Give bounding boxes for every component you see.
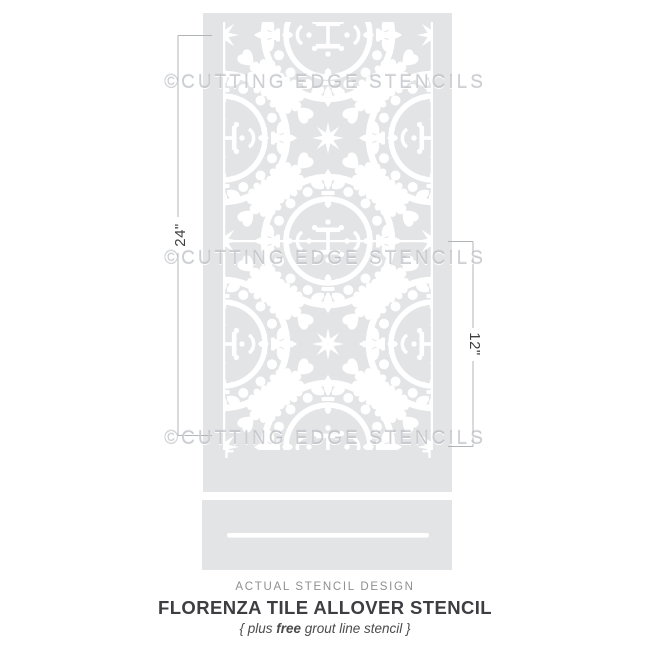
dimension-height-label: 24"	[172, 213, 190, 257]
caption-subtitle-bold: free	[276, 621, 301, 636]
caption-block: ACTUAL STENCIL DESIGN FLORENZA TILE ALLO…	[0, 580, 650, 637]
grout-slot	[227, 533, 429, 538]
stencil-graphic	[0, 0, 650, 650]
caption-subtitle: { plus free grout line stencil }	[0, 621, 650, 637]
caption-kicker: ACTUAL STENCIL DESIGN	[0, 580, 650, 594]
caption-subtitle-post: grout line stencil }	[301, 621, 411, 636]
dimension-repeat-label: 12"	[465, 322, 483, 366]
product-image: ©CUTTING EDGE STENCILS ©CUTTING EDGE STE…	[0, 0, 650, 650]
caption-title: FLORENZA TILE ALLOVER STENCIL	[0, 597, 650, 618]
caption-subtitle-pre: { plus	[239, 621, 276, 636]
